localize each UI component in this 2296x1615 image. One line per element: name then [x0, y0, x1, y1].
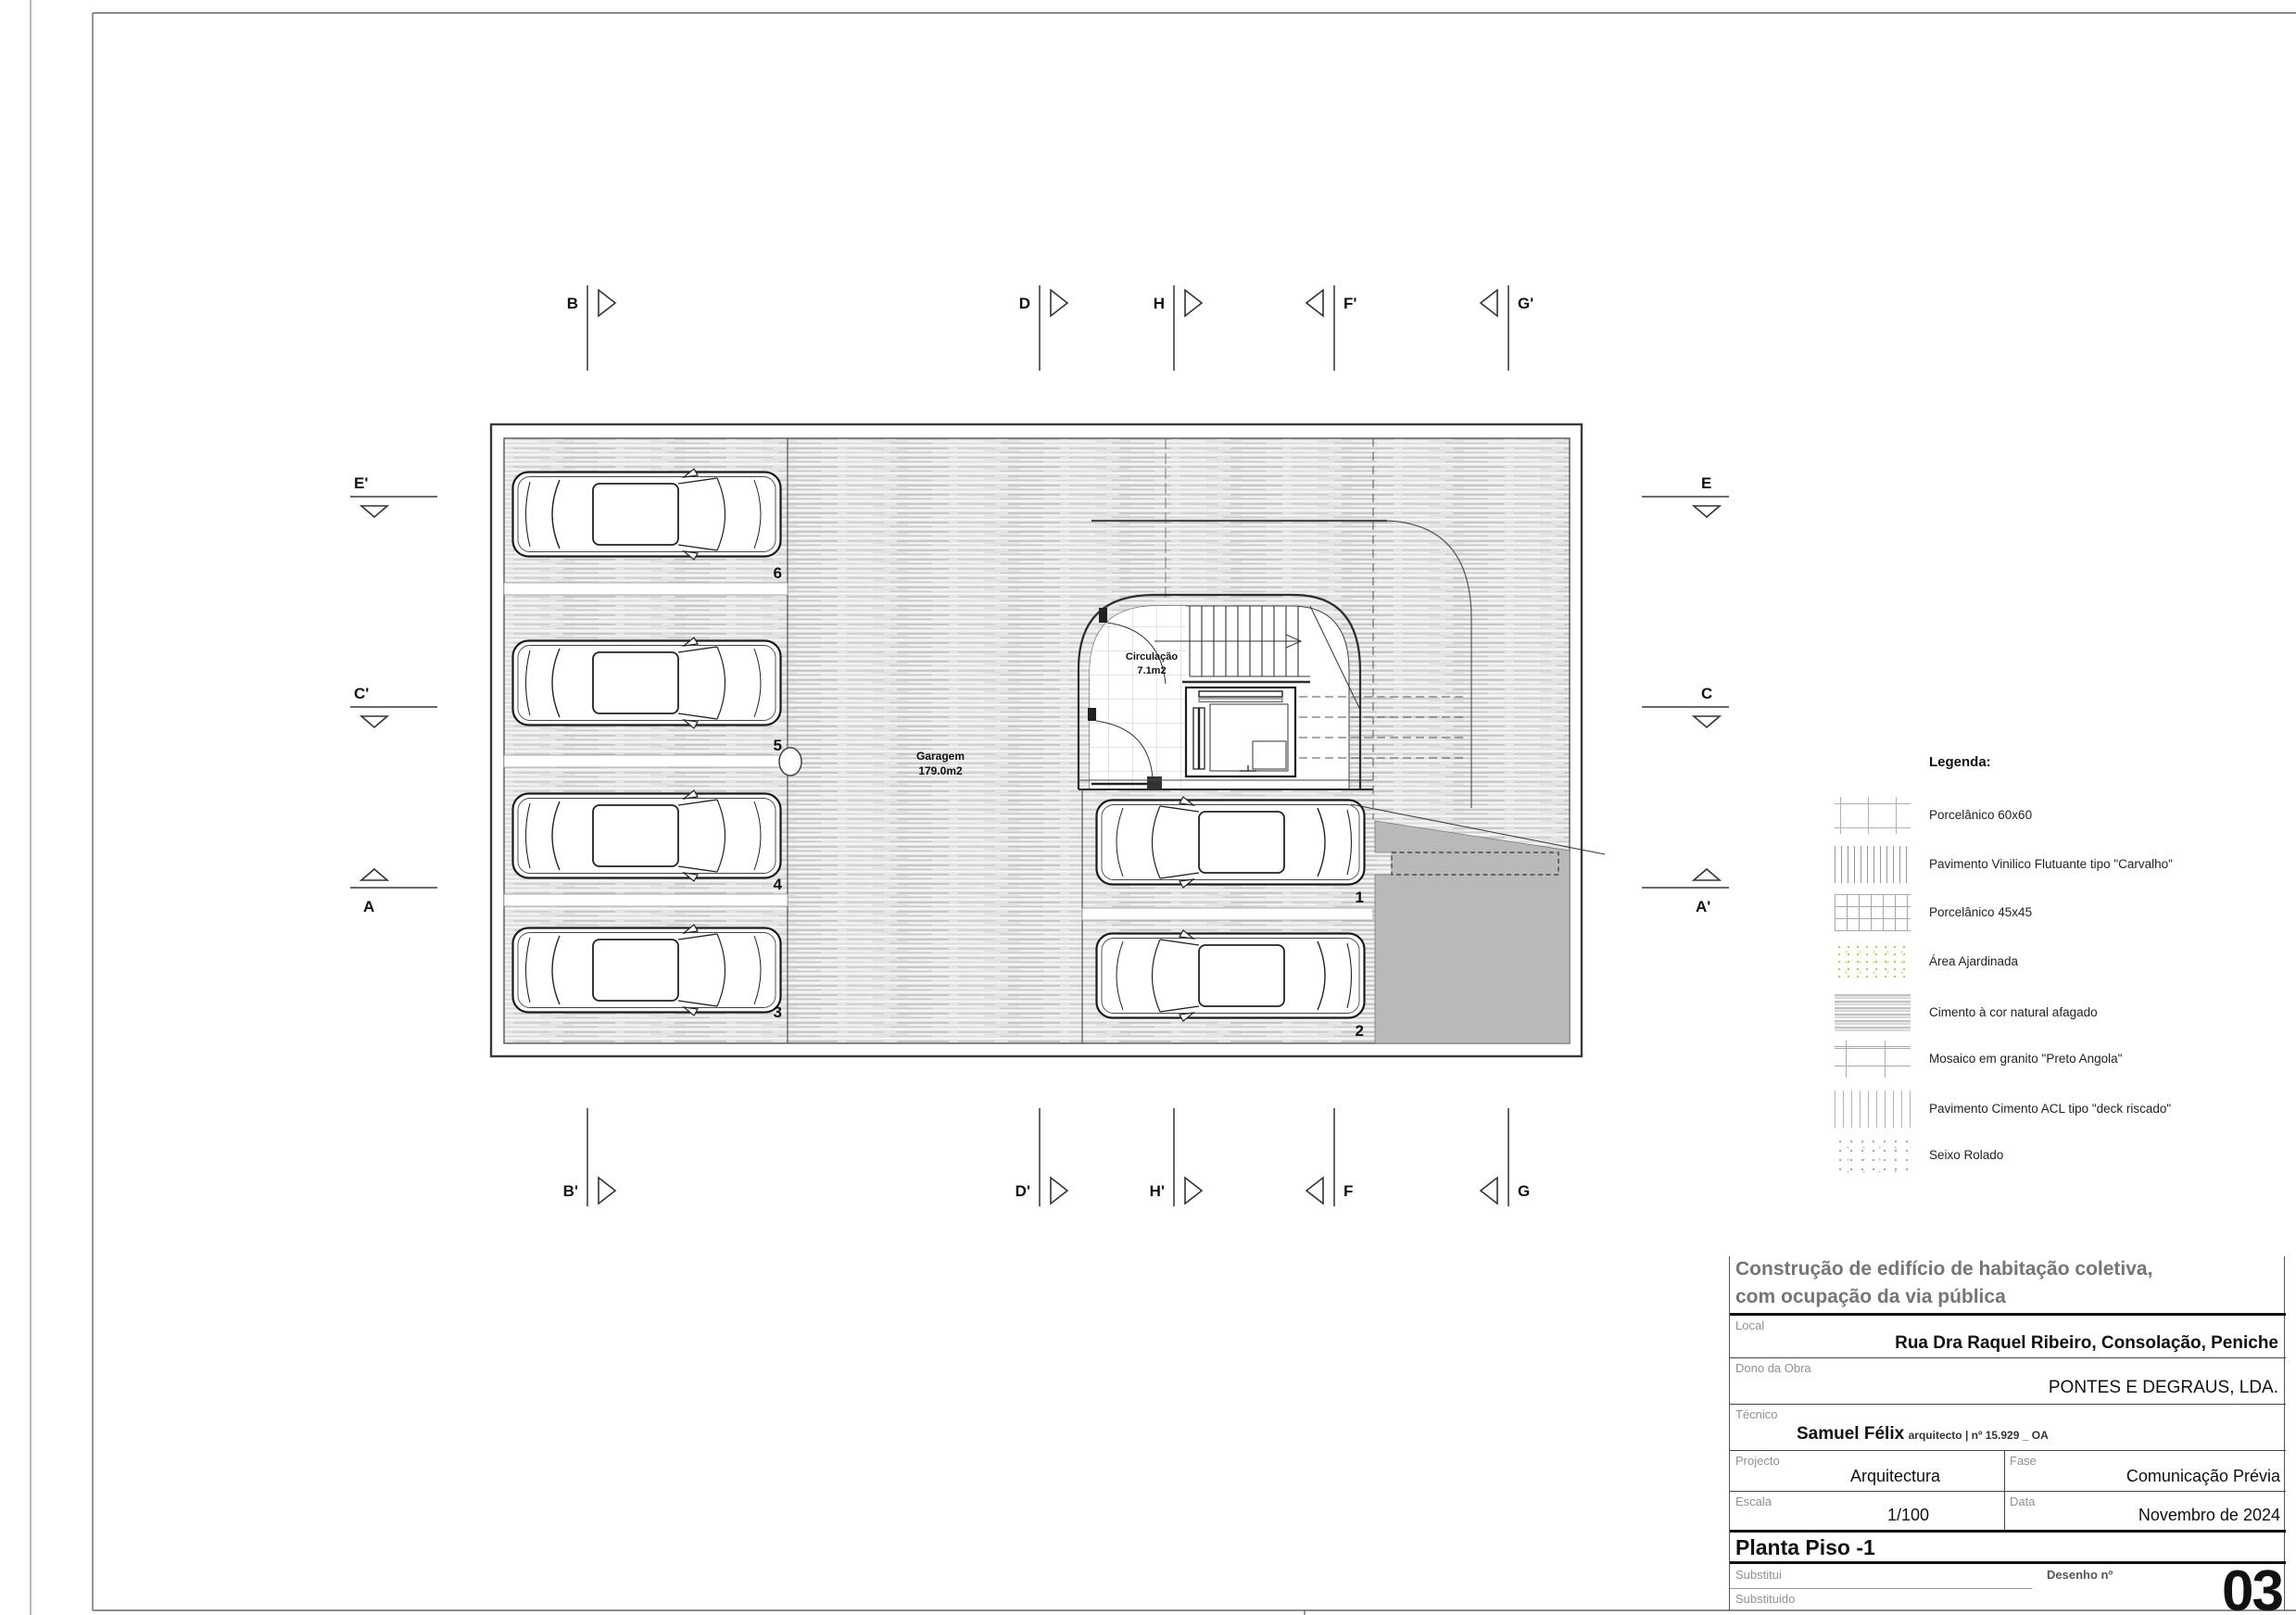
- section-marker-Gp: G': [1481, 285, 1533, 371]
- section-label-B: B: [567, 295, 578, 312]
- section-label-Bp: B': [563, 1182, 578, 1200]
- section-label-Fp: F': [1344, 295, 1356, 312]
- section-marker-D: D: [1019, 285, 1067, 371]
- cell-divider: [2004, 1451, 2005, 1491]
- section-marker-C-tri: [1694, 716, 1720, 727]
- parking-right-column: 1 2: [1082, 789, 1373, 1043]
- tecnico-line: Samuel Félix arquitecto | nº 15.929 _ OA: [1797, 1424, 2049, 1445]
- garagem-name: Garagem: [916, 750, 965, 763]
- section-marker-B: B: [567, 285, 615, 371]
- substituido-label: Substituido: [1735, 1592, 1795, 1606]
- dono-value: PONTES E DEGRAUS, LDA.: [2049, 1378, 2278, 1398]
- fase-label: Fase: [2010, 1454, 2037, 1468]
- ramp-platform: [1392, 852, 1558, 875]
- spot-number-6: 6: [774, 564, 782, 582]
- section-label-Ep: E': [354, 474, 368, 492]
- swatch-seixo-icon: [1835, 1137, 1911, 1174]
- data-label: Data: [2010, 1495, 2035, 1508]
- section-marker-A: A: [350, 869, 437, 915]
- fase-value: Comunicação Prévia: [2126, 1467, 2280, 1486]
- circulacao-name: Circulação: [1126, 651, 1179, 662]
- desenho-label: Desenho nº: [2047, 1568, 2113, 1582]
- legend-label: Pavimento Vinilico Flutuante tipo "Carva…: [1929, 857, 2173, 871]
- section-marker-G: G: [1481, 1108, 1530, 1206]
- spot-number-4: 4: [774, 876, 783, 893]
- row-dono-da-obra: Dono da Obra PONTES E DEGRAUS, LDA.: [1730, 1358, 2286, 1405]
- row-substitui: Substitui Substituido Desenho nº 03: [1730, 1564, 2286, 1610]
- section-label-F: F: [1344, 1182, 1353, 1200]
- legend-label: Pavimento Cimento ACL tipo "deck riscado…: [1929, 1102, 2171, 1116]
- row-drawing-title: Planta Piso -1: [1730, 1533, 2286, 1564]
- section-label-F-prime: H: [1154, 295, 1165, 312]
- section-label-Dp: D': [1016, 1182, 1030, 1200]
- data-value: Novembro de 2024: [2138, 1506, 2280, 1525]
- swatch-mosaico-icon: [1835, 1041, 1911, 1078]
- spot-number-3: 3: [774, 1003, 782, 1021]
- swatch-cimento-icon: [1835, 994, 1911, 1031]
- swatch-porcelanico-60-icon: [1835, 797, 1911, 834]
- tecnico-label: Técnico: [1735, 1407, 1778, 1421]
- section-marker-Fp: F': [1306, 285, 1356, 371]
- section-marker-Ap: A': [1642, 869, 1729, 915]
- car-spot-5: [513, 637, 781, 728]
- column-circle: [779, 748, 801, 776]
- section-label-G: G: [1518, 1182, 1530, 1200]
- dono-label: Dono da Obra: [1735, 1361, 1811, 1375]
- circulacao-area: 7.1m2: [1137, 665, 1166, 676]
- section-marker-C: C: [1642, 685, 1729, 707]
- project-title-line1: Construção de edifício de habitação cole…: [1735, 1258, 2152, 1281]
- section-marker-Bp: B': [563, 1108, 615, 1206]
- title-block: Construção de edifício de habitação cole…: [1729, 1256, 2285, 1610]
- row-local: Local Rua Dra Raquel Ribeiro, Consolação…: [1730, 1316, 2286, 1358]
- section-marker-Ep: E': [350, 474, 437, 517]
- row-projecto-fase: Projecto Arquitectura Fase Comunicação P…: [1730, 1451, 2286, 1492]
- section-marker-E: E: [1642, 474, 1729, 517]
- spot-number-5: 5: [774, 737, 782, 754]
- elevator: [1186, 688, 1295, 776]
- car-spot-1: [1097, 797, 1365, 888]
- escala-value: 1/100: [1887, 1506, 1929, 1525]
- spot-number-1: 1: [1356, 889, 1364, 906]
- swatch-acl-icon: [1835, 1091, 1911, 1128]
- garage-plan: 6 5 4 3 Garagem 179.0m2: [491, 424, 1605, 1056]
- section-marker-Cp: C': [350, 685, 437, 727]
- legend-title: Legenda:: [1929, 754, 1991, 770]
- legend-item: Seixo Rolado: [1835, 1137, 2279, 1176]
- legend-label: Cimento à cor natural afagado: [1929, 1005, 2098, 1019]
- section-label-D: D: [1019, 295, 1030, 312]
- legend-label: Porcelânico 45x45: [1929, 905, 2032, 919]
- drawing-title: Planta Piso -1: [1735, 1535, 1875, 1560]
- section-label-C: C: [1701, 685, 1712, 702]
- row-tecnico: Técnico Samuel Félix arquitecto | nº 15.…: [1730, 1405, 2286, 1451]
- car-spot-4: [513, 790, 781, 881]
- legend-item: Pavimento Cimento ACL tipo "deck riscado…: [1835, 1091, 2279, 1129]
- substitui-divider: [1730, 1588, 2032, 1589]
- legend-label: Seixo Rolado: [1929, 1148, 2003, 1162]
- legend-item: Cimento à cor natural afagado: [1835, 994, 2279, 1033]
- section-label-Cp: C': [354, 685, 369, 702]
- legend-item: Pavimento Vinilico Flutuante tipo "Carva…: [1835, 846, 2279, 885]
- projecto-value: Arquitectura: [1850, 1467, 1940, 1486]
- cell-divider: [2004, 1492, 2005, 1530]
- tecnico-name: Samuel Félix: [1797, 1424, 1904, 1444]
- section-marker-Dp: D': [1016, 1108, 1067, 1206]
- section-marker-Hp: H': [1150, 1108, 1202, 1206]
- project-title-line2: com ocupação da via pública: [1735, 1286, 2006, 1308]
- garagem-area: 179.0m2: [918, 764, 963, 777]
- escala-label: Escala: [1735, 1495, 1772, 1508]
- legend-item: Área Ajardinada: [1835, 943, 2279, 982]
- swatch-ajardinada-icon: [1835, 943, 1911, 980]
- car-spot-6: [513, 469, 781, 560]
- swatch-vinilico-icon: [1835, 846, 1911, 883]
- legend-label: Área Ajardinada: [1929, 954, 2018, 968]
- legend-item: Mosaico em granito "Preto Angola": [1835, 1041, 2279, 1079]
- local-label: Local: [1735, 1318, 1764, 1332]
- projecto-label: Projecto: [1735, 1454, 1780, 1468]
- legend-item: Porcelânico 45x45: [1835, 894, 2279, 933]
- section-label-A: A: [363, 898, 374, 915]
- legend-item: Porcelânico 60x60: [1835, 797, 2279, 836]
- substitui-label: Substitui: [1735, 1568, 1782, 1582]
- spot-number-2: 2: [1356, 1022, 1364, 1040]
- local-value: Rua Dra Raquel Ribeiro, Consolação, Peni…: [1895, 1333, 2278, 1354]
- swatch-porcelanico-45-icon: [1835, 894, 1911, 931]
- section-label-Gp: G': [1518, 295, 1533, 312]
- tecnico-details: arquitecto | nº 15.929 _ OA: [1909, 1429, 2049, 1442]
- legend-label: Porcelânico 60x60: [1929, 808, 2032, 822]
- legend-label: Mosaico em granito "Preto Angola": [1929, 1052, 2122, 1066]
- section-label-Ap: A': [1696, 898, 1710, 915]
- section-label-Hp: H': [1150, 1182, 1165, 1200]
- car-spot-3: [513, 925, 781, 1016]
- project-title: Construção de edifício de habitação cole…: [1730, 1256, 2286, 1316]
- section-marker-H: H: [1154, 285, 1202, 371]
- desenho-number: 03: [2222, 1558, 2282, 1615]
- car-spot-2: [1097, 930, 1365, 1021]
- drawing-sheet: 6 5 4 3 Garagem 179.0m2: [0, 0, 2296, 1615]
- section-label-E: E: [1701, 474, 1711, 492]
- section-marker-F: F: [1306, 1108, 1353, 1206]
- row-escala-data: Escala 1/100 Data Novembro de 2024: [1730, 1492, 2286, 1533]
